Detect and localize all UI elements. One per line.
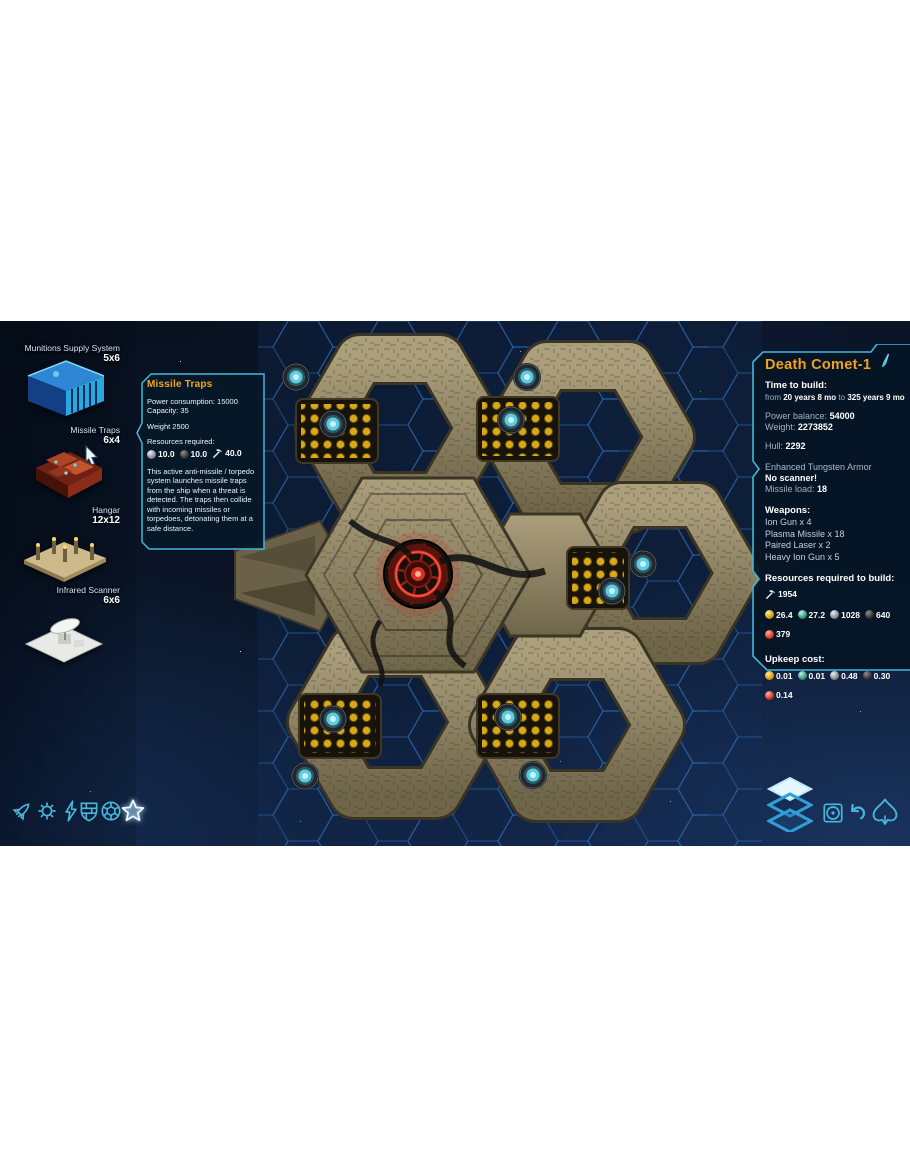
resource-gold-sphere-icon: 0.01: [765, 671, 793, 681]
tooltip-resource-row: 10.010.040.0: [147, 448, 259, 462]
tab-special-selected[interactable]: [120, 798, 144, 822]
resource-carbon-sphere-icon: 10.0: [180, 450, 208, 460]
build-resources-label: Resources required to build:: [765, 573, 903, 585]
sidebar-item-munitions-supply-system[interactable]: Munitions Supply System 5x6: [0, 343, 136, 423]
pickaxe-icon: [765, 589, 776, 600]
teal-sphere-icon: [798, 610, 807, 619]
ship-weight: Weight: 2273852: [765, 422, 903, 433]
tooltip-title: Missile Traps: [147, 380, 259, 390]
gear-icon: [35, 799, 59, 823]
item-name: Missile Traps: [70, 425, 120, 435]
resource-pickaxe-icon: 1954: [765, 589, 797, 600]
layers-icon: [767, 776, 813, 832]
time-to-build-value: from 20 years 8 mo to 325 years 9 mo: [765, 392, 903, 403]
resource-teal-sphere-icon: 27.2: [798, 610, 826, 620]
sidebar-item-hangar[interactable]: Hangar 12x12: [0, 505, 136, 585]
red-sphere-icon: [765, 691, 774, 700]
resource-red-sphere-icon: 0.14: [765, 690, 793, 700]
missile-load: Missile load: 18: [765, 484, 903, 495]
star-icon: [120, 798, 146, 824]
carbon-sphere-icon: [863, 671, 872, 680]
weapon-line: Plasma Missile x 18: [765, 529, 903, 541]
metal-sphere-icon: [830, 671, 839, 680]
sidebar-item-missile-traps[interactable]: Missile Traps 6x4: [0, 425, 136, 505]
undo-icon: [845, 800, 869, 824]
carbon-sphere-icon: [865, 610, 874, 619]
resource-gold-sphere-icon: 26.4: [765, 610, 793, 620]
sidebar-item-infrared-scanner[interactable]: Infrared Scanner 6x6: [0, 585, 136, 665]
time-to-build-label: Time to build:: [765, 380, 903, 392]
camera-target-button[interactable]: [821, 801, 845, 825]
weapon-line: Ion Gun x 4: [765, 517, 903, 529]
munitions-thumbnail: [18, 356, 110, 422]
hull-layers-button[interactable]: [767, 776, 813, 832]
pickaxe-icon: [212, 448, 223, 459]
resource-pickaxe-icon: 40.0: [212, 448, 242, 459]
gold-sphere-icon: [765, 671, 774, 680]
missile-traps-tooltip: Missile Traps Power consumption: 15000 C…: [136, 373, 266, 551]
resource-metal-sphere-icon: 1028: [830, 610, 860, 620]
power-balance: Power balance: 54000: [765, 411, 903, 422]
resource-carbon-sphere-icon: 640: [865, 610, 890, 620]
ship-hull: Hull: 2292: [765, 441, 903, 452]
resource-metal-sphere-icon: 10.0: [147, 450, 175, 460]
screenshot-page: { "colors": { "accent_cyan": "#43b6d8", …: [0, 0, 910, 1155]
tooltip-capacity: Capacity: 35: [147, 406, 259, 416]
metal-sphere-icon: [830, 610, 839, 619]
resource-red-sphere-icon: 379: [765, 629, 790, 639]
scanner-warning: No scanner!: [765, 473, 903, 484]
undo-button[interactable]: [845, 800, 869, 824]
tooltip-description: This active anti-missile / torpedo syste…: [147, 467, 259, 534]
tab-defense[interactable]: [77, 799, 101, 823]
build-menu-sidebar: Munitions Supply System 5x6 Missile Trap…: [0, 321, 136, 846]
upkeep-label: Upkeep cost:: [765, 654, 903, 666]
ship-name: Death Comet-1: [765, 357, 871, 373]
resource-metal-sphere-icon: 0.48: [830, 671, 858, 681]
ship-info-panel: Death Comet-1 Time to build: from 20 yea…: [746, 344, 910, 678]
tab-production[interactable]: [35, 799, 59, 823]
ship-menu-button[interactable]: [869, 797, 901, 827]
tooltip-weight: Weight 2500: [147, 422, 259, 432]
hangar-thumbnail: [18, 518, 110, 584]
shield-icon: [77, 799, 101, 823]
spade-icon: [869, 797, 901, 827]
infrared-scanner-thumbnail: [18, 598, 110, 664]
resource-teal-sphere-icon: 0.01: [798, 671, 826, 681]
carbon-sphere-icon: [180, 450, 189, 459]
gold-sphere-icon: [765, 610, 774, 619]
game-viewport: Munitions Supply System 5x6 Missile Trap…: [0, 321, 910, 846]
tooltip-resources-label: Resources required:: [147, 437, 259, 447]
upkeep-rows: 0.010.010.480.300.14: [765, 667, 903, 705]
ship-death-comet[interactable]: [230, 321, 770, 846]
item-name: Munitions Supply System: [25, 343, 120, 353]
metal-sphere-icon: [147, 450, 156, 459]
camera-target-icon: [821, 801, 845, 825]
armor-type: Enhanced Tungsten Armor: [765, 462, 903, 473]
weapon-line: Heavy Ion Gun x 5: [765, 552, 903, 564]
tooltip-power: Power consumption: 15000: [147, 397, 259, 407]
pencil-icon[interactable]: [880, 353, 890, 367]
missile-icon: [10, 799, 34, 823]
resource-carbon-sphere-icon: 0.30: [863, 671, 891, 681]
build-resources-rows: 195426.427.21028640379: [765, 587, 903, 644]
red-sphere-icon: [765, 630, 774, 639]
weapons-list: Ion Gun x 4Plasma Missile x 18Paired Las…: [765, 517, 903, 563]
teal-sphere-icon: [798, 671, 807, 680]
item-name: Infrared Scanner: [57, 585, 120, 595]
weapons-label: Weapons:: [765, 505, 903, 517]
weapon-line: Paired Laser x 2: [765, 540, 903, 552]
tab-missiles[interactable]: [10, 799, 34, 823]
mouse-cursor: [84, 445, 100, 467]
item-name: Hangar: [92, 505, 120, 515]
